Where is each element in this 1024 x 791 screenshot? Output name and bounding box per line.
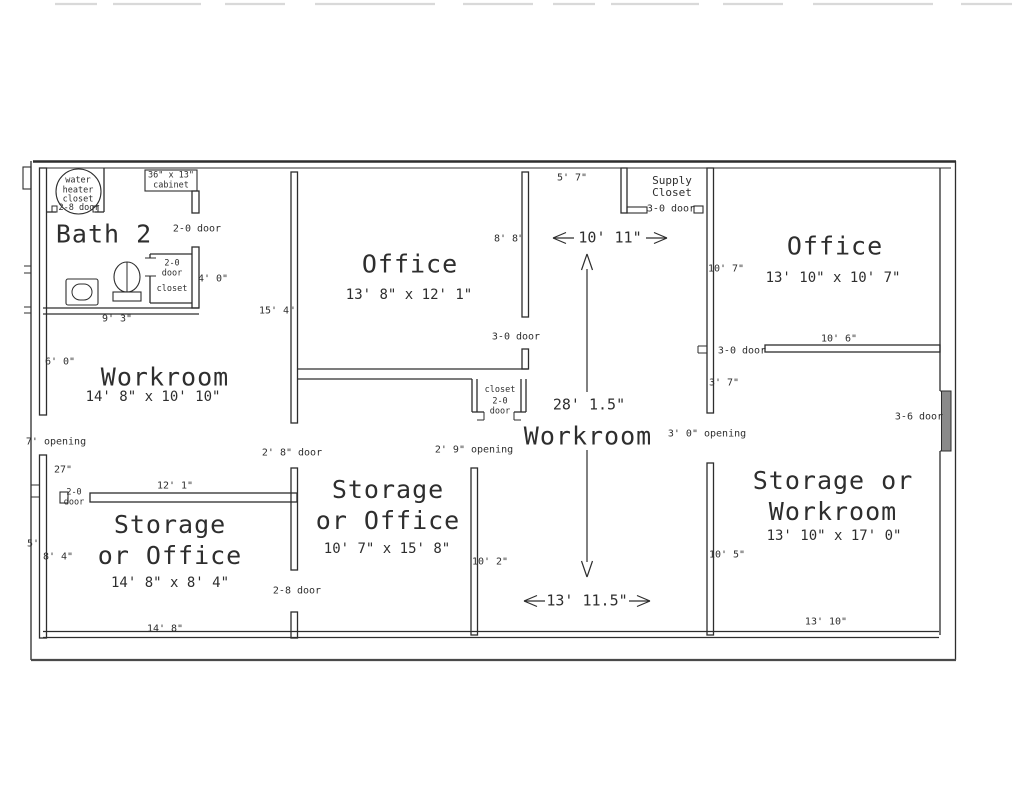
label-office-right-dims: 13' 10" x 10' 7" (766, 270, 901, 286)
label-storage-wr-dims: 13' 10" x 17' 0" (767, 528, 902, 544)
label-dim-13-10: 13' 10" (805, 616, 847, 628)
label-door-3-0-supply: 3-0 door (647, 203, 695, 215)
label-bath-title: Bath 2 (56, 218, 152, 249)
label-dim-14-8: 14' 8" (147, 623, 183, 635)
label-office-top-dims: 13' 8" x 12' 1" (346, 287, 472, 303)
label-dim-13-11-5: 13' 11.5" (546, 592, 627, 609)
label-opening-3-0: 3' 0" opening (668, 428, 746, 440)
label-workroom-center-title: Workroom (524, 420, 652, 451)
label-door-3-0-right: 3-0 door (718, 345, 766, 357)
label-door-2-0-left: 2-0 door (64, 488, 84, 507)
label-dim-10-11: 10' 11" (578, 229, 641, 246)
label-mid-closet: closet (485, 386, 516, 396)
label-door-3-6: 3-6 door (895, 411, 943, 423)
label-dim-10-5: 10' 5" (709, 549, 745, 561)
wall-office-right-bottom (765, 345, 940, 352)
label-dim-5-7: 5' 7" (557, 172, 587, 184)
wall-12-1 (60, 492, 297, 503)
label-dim-8-4: 8' 4" (43, 551, 73, 563)
label-door-2-8-bath: 2-8 door (59, 204, 100, 214)
label-door-2-0-bath: 2-0 door (173, 223, 221, 235)
label-workroom-left-dims: 14' 8" x 10' 10" (86, 389, 221, 405)
label-door-2-8-bottom: 2-8 door (273, 585, 321, 597)
label-dim-5: 5' (27, 538, 39, 550)
label-opening-7: 7' opening (26, 436, 86, 448)
label-dim-9-3: 9' 3" (102, 313, 132, 325)
label-dim-27: 27" (54, 464, 72, 476)
label-dim-10-2: 10' 2" (472, 556, 508, 568)
label-bath-closet-door: 2-0 door (162, 259, 182, 278)
label-storage-mid-title: Storage or Office (316, 474, 460, 537)
label-door-2-8-top: 2' 8" door (262, 447, 322, 459)
label-bath-closet: closet (157, 285, 188, 295)
wall-center-right (698, 168, 714, 635)
label-dim-12-1: 12' 1" (157, 480, 193, 492)
wall-left-interior (31, 168, 47, 638)
wall-storage-mid-right (471, 468, 478, 635)
label-door-3-0-office: 3-0 door (492, 331, 540, 343)
label-storage-wr-title: Storage or Workroom (753, 465, 914, 528)
label-opening-2-9: 2' 9" opening (435, 444, 513, 456)
label-dim-28-1-5: 28' 1.5" (553, 396, 625, 413)
label-supply-closet: Supply Closet (652, 175, 692, 199)
label-water-heater: water heater closet (63, 177, 94, 206)
label-office-top-title: Office (362, 248, 458, 279)
label-dim-8-8: 8' 8" (494, 233, 524, 245)
label-dim-4-0: 4' 0" (198, 273, 228, 285)
label-storage-mid-dims: 10' 7" x 15' 8" (324, 541, 450, 557)
label-dim-10-7-wall: 10' 7" (708, 263, 744, 275)
label-dim-15-4: 15' 4" (259, 305, 295, 317)
label-workroom-left-title: Workroom (101, 361, 229, 392)
label-mid-closet-door: 2-0 door (490, 397, 510, 416)
label-office-right-title: Office (787, 230, 883, 261)
label-storage-left-dims: 14' 8" x 8' 4" (111, 575, 229, 591)
label-storage-left-title: Storage or Office (98, 509, 242, 572)
toilet (66, 279, 98, 305)
wall-office-left (291, 172, 298, 638)
label-cabinet: 36" x 13" cabinet (148, 171, 194, 190)
label-dim-6-0: 6' 0" (45, 356, 75, 368)
floor-plan-page: water heater closet 36" x 13" cabinet 2-… (0, 0, 1024, 791)
label-dim-3-7: 3' 7" (709, 377, 739, 389)
label-dim-10-6: 10' 6" (821, 333, 857, 345)
